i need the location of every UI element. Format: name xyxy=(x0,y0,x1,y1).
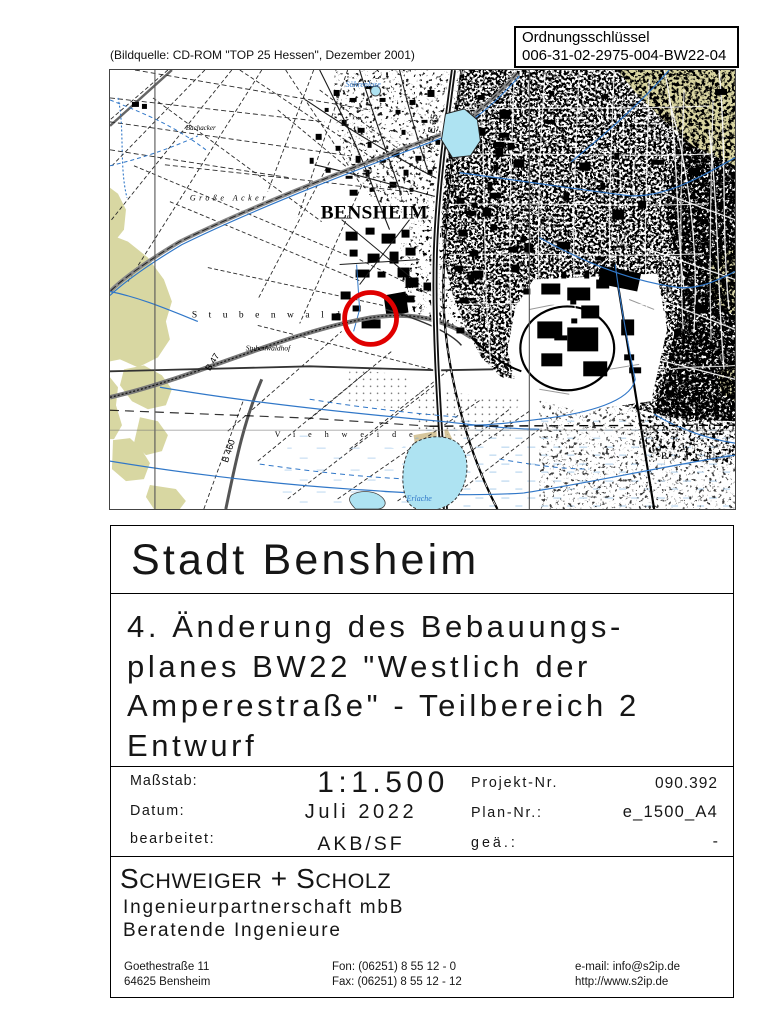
svg-text:Große Acker: Große Acker xyxy=(190,194,269,203)
svg-text:Söhrenlose: Söhrenlose xyxy=(346,80,382,89)
svg-text:Stubenwald: Stubenwald xyxy=(192,310,352,320)
svg-text:Viehweide: Viehweide xyxy=(275,430,426,439)
svg-text:Stubenwaldhof: Stubenwaldhof xyxy=(246,343,291,352)
svg-text:Erlache: Erlache xyxy=(406,494,433,503)
svg-text:Bruch: Bruch xyxy=(661,451,718,461)
svg-text:BENSHEIM: BENSHEIM xyxy=(321,203,428,224)
